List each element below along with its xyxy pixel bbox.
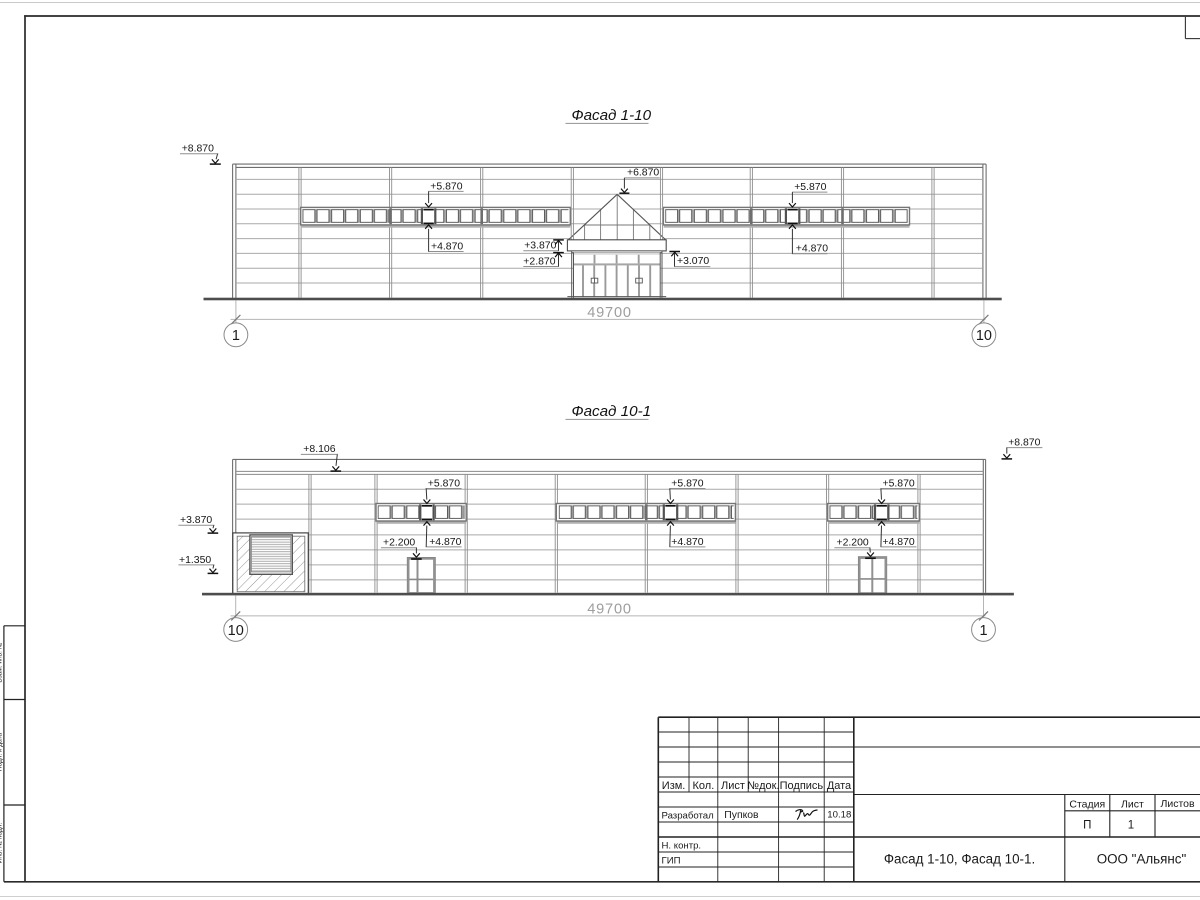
svg-text:Инв. № подл.: Инв. № подл. [0,823,3,864]
svg-text:+6.870: +6.870 [627,168,659,179]
svg-text:Лист: Лист [721,780,745,792]
svg-text:+3.070: +3.070 [677,256,709,267]
svg-text:Н. контр.: Н. контр. [662,840,702,851]
svg-text:+8.106: +8.106 [303,444,335,455]
svg-text:10: 10 [228,623,244,639]
svg-text:Взам. инв. №: Взам. инв. № [0,642,3,682]
svg-text:+4.870: +4.870 [429,537,461,548]
svg-text:ООО "Альянс": ООО "Альянс" [1097,852,1187,867]
svg-text:+8.870: +8.870 [182,143,214,154]
svg-text:+5.870: +5.870 [671,478,703,489]
svg-text:10: 10 [976,328,992,344]
svg-text:+4.870: +4.870 [671,537,703,548]
svg-text:1: 1 [232,328,240,344]
svg-text:49700: 49700 [587,601,632,617]
svg-text:№док.: №док. [747,780,779,792]
svg-text:1: 1 [1128,819,1134,831]
svg-text:Подпись: Подпись [780,780,824,792]
svg-text:+2.200: +2.200 [837,538,869,549]
svg-text:Лист: Лист [1121,798,1144,810]
svg-text:Пупков: Пупков [724,810,759,821]
svg-text:+5.870: +5.870 [428,478,460,489]
svg-text:Листов: Листов [1160,798,1195,810]
svg-text:+5.870: +5.870 [430,181,462,192]
svg-text:+2.870: +2.870 [523,256,555,267]
svg-text:+4.870: +4.870 [431,241,463,252]
svg-text:+2.200: +2.200 [383,538,415,549]
svg-text:+3.870: +3.870 [180,515,212,526]
svg-text:1: 1 [979,623,987,639]
svg-text:49700: 49700 [587,305,632,321]
svg-text:10.18: 10.18 [827,810,851,821]
svg-text:+4.870: +4.870 [796,244,828,255]
svg-text:Фасад 1-10: Фасад 1-10 [572,107,652,124]
svg-text:Изм.: Изм. [662,780,686,792]
svg-text:+5.870: +5.870 [883,478,915,489]
svg-text:Кол.: Кол. [693,780,715,792]
svg-text:+3.870: +3.870 [524,241,556,252]
svg-text:П: П [1083,819,1091,831]
svg-text:Фасад 1-10, Фасад 10-1.: Фасад 1-10, Фасад 10-1. [884,852,1035,867]
svg-text:+1.350: +1.350 [179,555,211,566]
svg-text:Фасад 10-1: Фасад 10-1 [572,403,652,420]
svg-text:ГИП: ГИП [662,855,681,866]
svg-text:+5.870: +5.870 [794,182,826,193]
svg-text:Подп. и дата: Подп. и дата [0,732,3,771]
svg-text:Разработал: Разработал [662,810,714,821]
svg-text:Стадия: Стадия [1069,798,1105,810]
svg-text:+4.870: +4.870 [883,537,915,548]
svg-text:Дата: Дата [827,780,852,792]
svg-text:+8.870: +8.870 [1008,437,1040,448]
